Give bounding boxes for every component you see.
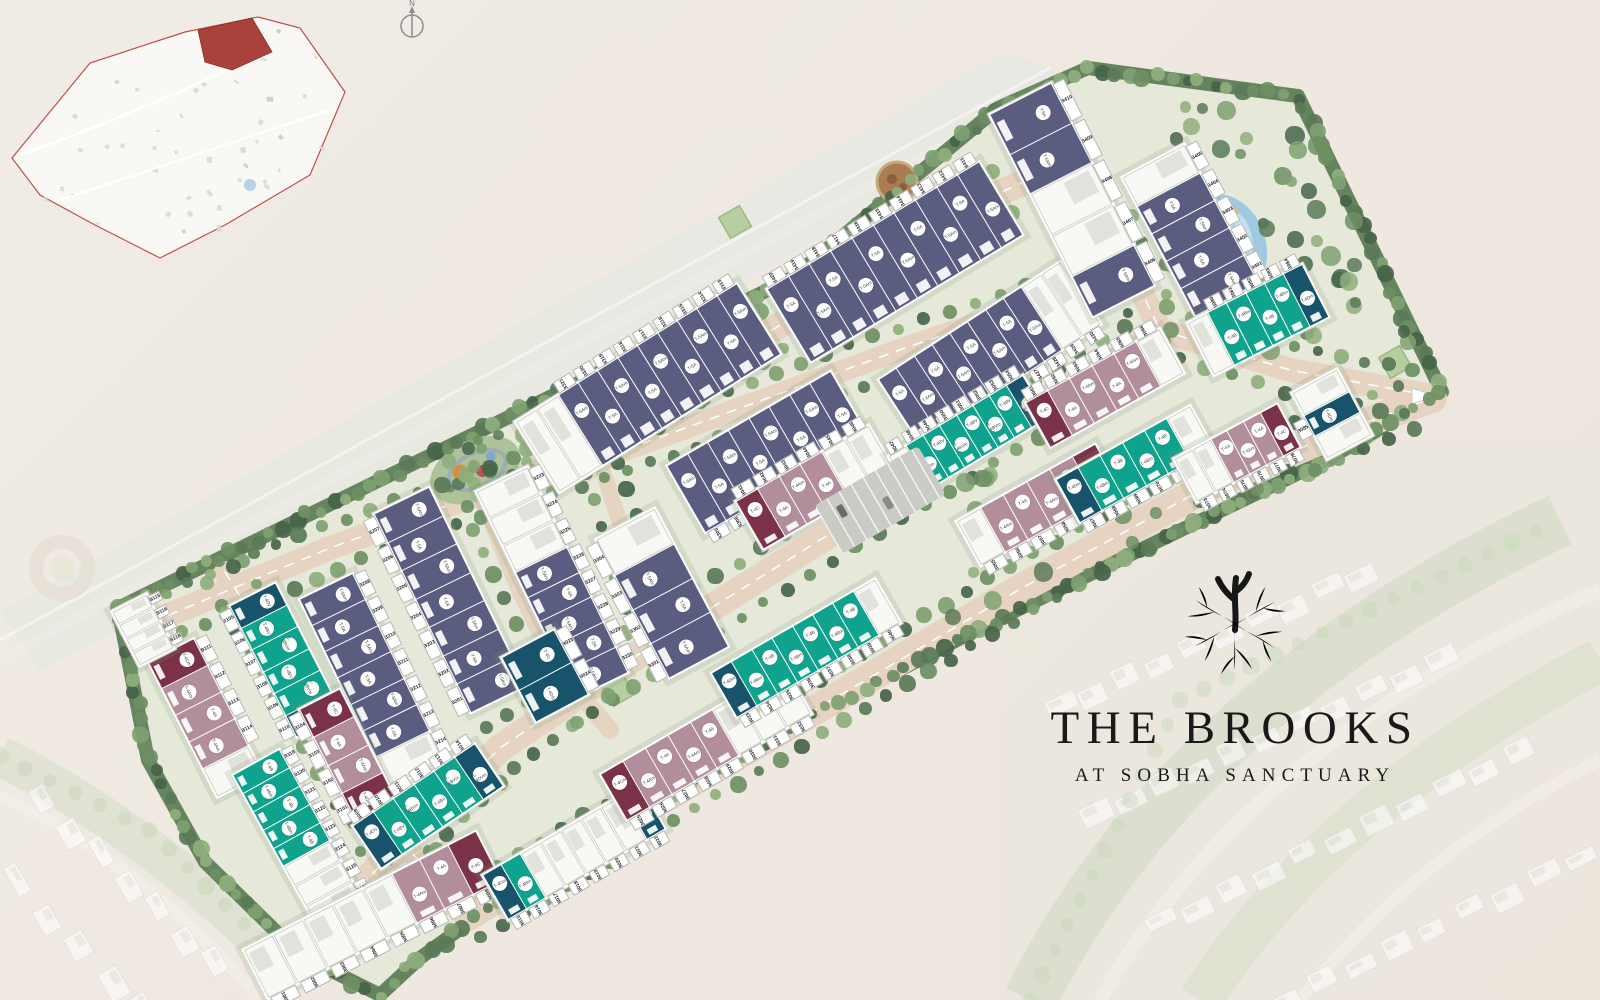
unit-type-badge: T-5A <box>682 356 703 377</box>
tree-icon <box>512 399 528 415</box>
unit-type-badge: T-4B <box>760 647 780 667</box>
unit-type-badge: T-4Bm <box>1234 304 1254 324</box>
tree-icon <box>221 542 235 556</box>
unit-type-badge: T-5Am <box>760 423 780 443</box>
tree-icon <box>588 493 601 506</box>
tree-icon <box>1180 101 1191 112</box>
tree-icon <box>945 609 960 624</box>
tree-icon <box>1301 183 1317 199</box>
tree-icon <box>1185 513 1201 529</box>
unit-type-badge: T-5A <box>464 648 484 668</box>
unit-type-badge: T-4DVm <box>470 764 491 785</box>
plot-number-label: B001 <box>270 984 301 1000</box>
unit-type-badge: T-5Am <box>571 400 592 421</box>
tree-icon <box>340 494 351 505</box>
unit-type-badge: T-5Am <box>801 399 821 419</box>
unit-type-badge: T-5A <box>925 359 946 380</box>
tree-icon <box>1097 842 1113 858</box>
unit-type-badge: T-5A <box>584 632 604 652</box>
unit-type-badge: T-4Bm <box>827 623 847 643</box>
tree-icon <box>794 739 809 754</box>
tree-icon <box>271 539 281 549</box>
tree-icon <box>354 551 368 565</box>
pocket-park <box>719 206 752 239</box>
tree-icon <box>985 626 1000 641</box>
tree-icon <box>509 616 525 632</box>
unit-type-badge: T-4C <box>1272 422 1292 442</box>
unit-type-badge: T-5A <box>823 269 844 290</box>
tree-icon <box>506 451 521 466</box>
unit-type-badge: T-5Am <box>1115 265 1135 285</box>
unit-type-badge: T-5A <box>997 313 1018 334</box>
tree-icon <box>478 547 489 558</box>
tree-icon <box>1382 357 1395 370</box>
unit-type-badge: T-4C <box>1034 400 1054 420</box>
unit-type-badge: T-4Dm <box>490 873 510 893</box>
unit-type-badge: T-4Bm <box>1092 475 1112 495</box>
unit-type-badge: T-4Am <box>1122 351 1142 371</box>
tree-icon <box>126 672 140 686</box>
tree-icon <box>920 663 936 679</box>
unit-type-badge: T-4Am <box>996 516 1016 536</box>
unit-type-badge: T-5A <box>721 331 742 352</box>
unit-type-badge: T-4A <box>1012 492 1032 512</box>
tree-icon <box>570 716 584 730</box>
tree-icon <box>393 469 406 482</box>
tree-icon <box>68 786 82 800</box>
tree-icon <box>186 562 197 573</box>
unit-type-badge: T-4A <box>1062 399 1082 419</box>
unit-type-badge: T-4Cm <box>610 772 630 792</box>
tree-icon <box>1217 101 1236 120</box>
tree-icon <box>845 691 859 705</box>
unit-type-badge: T-4BV <box>257 619 277 639</box>
unit-type-badge: T-4Bm <box>1272 285 1292 305</box>
unit-type-badge: T-4A <box>699 720 719 740</box>
tree-icon <box>859 702 871 714</box>
tree-icon <box>820 701 830 711</box>
tree-icon <box>734 558 746 570</box>
unit-type-badge: T-4A <box>1106 375 1126 395</box>
tree-icon <box>500 708 513 721</box>
tree-icon <box>1286 176 1297 187</box>
tree-icon <box>373 470 390 487</box>
unit-type-badge: T-4Am <box>205 735 225 755</box>
tree-icon <box>1372 403 1388 419</box>
tree-icon <box>781 583 795 597</box>
unit-type-badge: T-5A <box>602 406 623 427</box>
tree-icon <box>1334 349 1348 363</box>
unit-type-badge: T-5A <box>358 670 378 690</box>
unit-type-badge: T-5Am <box>465 613 485 633</box>
unit-type-badge: T-4A <box>328 732 348 752</box>
tree-icon <box>1289 341 1300 352</box>
unit-type-badge: T-5Am <box>856 275 877 296</box>
tree-icon <box>970 298 981 309</box>
car-icon <box>882 496 895 511</box>
unit-type-badge: T-5Am <box>437 556 457 576</box>
key-plan-inset <box>0 0 420 300</box>
tree-icon <box>161 841 177 857</box>
tree-icon <box>199 618 212 631</box>
unit-type-badge: T-4BVm <box>402 794 423 815</box>
tree-icon <box>1086 869 1098 881</box>
tree-icon <box>261 918 272 929</box>
tree-icon <box>181 861 194 874</box>
tree-icon <box>309 572 324 587</box>
tree-icon <box>263 527 274 538</box>
tree-icon <box>897 662 909 674</box>
tree-icon <box>916 607 932 623</box>
tree-icon <box>126 686 139 699</box>
tree-icon <box>485 566 502 583</box>
tree-icon <box>626 679 642 695</box>
unit-type-badge: T-5A <box>1033 102 1053 122</box>
tree-icon <box>1133 70 1150 87</box>
unit-type-badge: T-4A <box>654 746 674 766</box>
unit-type-badge: T-4Dm <box>719 671 739 691</box>
tree-icon <box>1126 536 1139 549</box>
tree-icon <box>219 875 236 892</box>
unit-type-badge: T-5A <box>383 722 403 742</box>
unit-type-badge: T-4B <box>1222 327 1242 347</box>
tree-icon <box>1345 212 1364 231</box>
tree-icon <box>527 747 540 760</box>
unit-type-badge: T-4DV <box>257 591 277 611</box>
tree-icon <box>497 591 511 605</box>
unit-type-badge: T-5Am <box>679 470 699 490</box>
unit-type-badge: T-4Bm <box>746 670 766 690</box>
car-icon <box>836 504 849 519</box>
tree-icon <box>965 640 976 651</box>
tree-icon <box>1235 497 1246 508</box>
unit-type-badge: T-5Am <box>690 326 711 347</box>
tree-icon <box>451 518 463 530</box>
unit-type-badge: T-5Am <box>954 364 975 385</box>
unit-type-badge: T-4BV <box>429 791 450 812</box>
tree-icon <box>893 324 904 335</box>
tree-icon <box>547 734 560 747</box>
tree-icon <box>601 688 617 704</box>
tree-icon <box>316 520 327 531</box>
tree-icon <box>827 556 839 568</box>
project-logo: THE BROOKS AT SOBHA SANCTUARY <box>1020 566 1450 787</box>
unit-type-badge: T-5A <box>781 295 802 316</box>
tree-icon <box>461 500 474 513</box>
unit-type-badge: T-4B <box>1108 452 1128 472</box>
tree-icon <box>746 377 758 389</box>
tree-icon <box>480 721 493 734</box>
tree-icon <box>794 357 809 372</box>
tree-icon <box>596 521 607 532</box>
tree-icon <box>773 752 788 767</box>
unit-type-badge: T-4Am <box>178 682 198 702</box>
tree-icon <box>1111 818 1124 831</box>
unit-type-badge: T-5A <box>1191 250 1211 270</box>
unit-type-badge: T-4BV <box>389 819 410 840</box>
tree-icon <box>1122 792 1138 808</box>
tree-icon <box>972 125 982 135</box>
key-plan-boundary <box>12 17 345 258</box>
unit-type-badge: T-4D <box>537 644 557 664</box>
tree-icon <box>1023 993 1036 1000</box>
tree-icon <box>493 430 503 440</box>
tree-icon <box>151 764 163 776</box>
tree-icon <box>730 776 747 793</box>
tree-icon <box>287 581 303 597</box>
unit-type-badge: T-4Dm <box>1298 289 1318 309</box>
tree-icon <box>407 952 424 969</box>
tree-icon <box>887 670 900 683</box>
unit-type-badge: T-4Am <box>639 770 659 790</box>
unit-type-badge: T-5Am <box>650 350 671 371</box>
unit-type-badge: T-5Am <box>409 500 429 520</box>
tree-icon <box>1321 246 1341 266</box>
branch-tree-icon <box>1175 566 1295 682</box>
tree-icon <box>836 712 852 728</box>
tree-icon <box>482 460 498 476</box>
unit-type-badge: T-5Am <box>358 637 378 657</box>
tree-icon <box>899 675 916 692</box>
unit-type-badge: T-5Am <box>983 199 1004 220</box>
tree-icon <box>1289 141 1307 159</box>
tree-icon <box>201 555 212 566</box>
tree-icon <box>298 505 311 518</box>
tree-icon <box>952 634 963 645</box>
tree-icon <box>468 460 481 473</box>
unit-type-badge: T-5Am <box>898 250 919 271</box>
unit-type-badge: T-4Bm <box>786 647 806 667</box>
tree-icon <box>1116 550 1133 567</box>
tree-icon <box>237 917 251 931</box>
unit-type-badge: T-5A <box>437 592 457 612</box>
unit-type-badge: T-5A <box>709 475 729 495</box>
tree-icon <box>1377 265 1394 282</box>
unit-type-badge: T-4Bm <box>515 874 535 894</box>
unit-type-badge: T-4A <box>203 702 223 722</box>
tree-icon <box>816 726 828 738</box>
tree-icon <box>1141 541 1157 557</box>
unit-type-badge: T-5Am <box>730 301 751 322</box>
unit-type-badge: T-4Bm <box>1136 451 1156 471</box>
tree-icon <box>1284 474 1295 485</box>
tree-icon <box>1340 272 1359 291</box>
tree-icon <box>418 458 429 469</box>
tree-icon <box>177 820 190 833</box>
tree-icon <box>182 577 193 588</box>
unit-type-badge: T-4Am <box>788 475 808 495</box>
tree-icon <box>954 125 969 140</box>
tree-icon <box>93 798 107 812</box>
tree-icon <box>1347 258 1362 273</box>
tree-icon <box>1393 380 1405 392</box>
tree-icon <box>376 992 386 1000</box>
unit-type-badge: T-4C <box>745 499 765 519</box>
unit-type-badge: T-5A <box>559 582 579 602</box>
unit-type-badge: T-5Am <box>384 689 404 709</box>
tree-icon <box>316 507 327 518</box>
tree-icon <box>1350 297 1361 308</box>
site-plan-canvas: T-5AB420T-5AmB419T-5AB418T-5AmB417T-5AB4… <box>0 0 1600 1000</box>
unit-type-badge: T-4A <box>816 474 836 494</box>
unit-type-badge: T-5A <box>642 381 663 402</box>
tree-icon <box>860 683 874 697</box>
unit-type-badge: T-4A <box>773 499 793 519</box>
unit-type-badge: T-5A <box>961 336 982 357</box>
tree-icon <box>956 473 975 492</box>
tree-icon <box>880 689 893 702</box>
unit-type-badge: T-4B <box>1260 308 1280 328</box>
tree-icon <box>943 485 956 498</box>
unit-type-badge: T-4B <box>800 624 820 644</box>
tree-icon <box>218 898 232 912</box>
tree-icon <box>667 814 680 827</box>
unit-type-badge: T-4C <box>324 699 344 719</box>
tree-icon <box>507 761 521 775</box>
tree-icon <box>1251 375 1265 389</box>
tree-icon <box>142 822 157 837</box>
unit-type-badge: T-5Am <box>676 637 696 657</box>
tree-icon <box>1073 893 1087 907</box>
tree-icon <box>399 962 409 972</box>
tree-icon <box>1235 149 1246 160</box>
unit-type-badge: T-5Am <box>333 584 353 604</box>
tree-icon <box>165 579 175 589</box>
tree-icon <box>1247 85 1259 97</box>
unit-type-badge: T-5A <box>950 193 971 214</box>
unit-type-badge: T-4Am <box>1078 376 1098 396</box>
unit-type-badge: T-4BVm <box>302 678 322 698</box>
unit-type-badge: T-5A <box>1162 195 1182 215</box>
tree-icon <box>450 436 463 449</box>
unit-type-badge: T-5Am <box>989 341 1010 362</box>
unit-type-badge: T-5Am <box>918 387 939 408</box>
tree-icon <box>1151 67 1165 81</box>
tree-icon <box>442 454 456 468</box>
unit-type-badge: T-4Dm <box>1319 405 1339 425</box>
unit-type-badge: T-4B <box>840 600 860 620</box>
unit-type-badge: T-4B <box>1152 428 1172 448</box>
tree-icon <box>1010 443 1023 456</box>
unit-type-badge: T-4BVm <box>279 634 299 654</box>
tree-icon <box>1183 118 1200 135</box>
tree-icon <box>200 855 212 867</box>
tree-icon <box>1240 132 1253 145</box>
unit-type-badge: T-5Am <box>640 568 660 588</box>
tree-icon <box>917 312 930 325</box>
unit-type-badge: T-5A <box>332 617 352 637</box>
tree-icon <box>1068 70 1081 83</box>
unit-type-badge: T-5Am <box>719 446 739 466</box>
unit-type-badge: T-5Am <box>1025 317 1046 338</box>
compass-north-label: N <box>409 0 415 8</box>
tree-icon <box>1259 220 1275 236</box>
unit-type-badge: T-4Am <box>684 744 704 764</box>
project-title: THE BROOKS <box>1020 701 1450 755</box>
unit-type-badge: T-4BVm <box>442 767 463 788</box>
tree-icon <box>1405 363 1420 378</box>
tree-icon <box>645 456 656 467</box>
tree-icon <box>193 840 210 857</box>
unit-type-badge: T-4Dm <box>1064 476 1084 496</box>
tree-icon <box>984 591 1002 609</box>
tree-icon <box>236 542 248 554</box>
tree-icon <box>248 548 259 559</box>
unit-type-badge: T-4A <box>431 857 451 877</box>
tree-icon <box>1034 966 1052 984</box>
unit-type-badge: T-4DV <box>361 822 382 843</box>
unit-type-badge: T-5A <box>409 535 429 555</box>
tree-icon <box>170 809 180 819</box>
tree-icon <box>943 305 957 319</box>
unit-type-badge: T-4Am <box>1042 491 1062 511</box>
unit-type-badge: T-5Am <box>940 224 961 245</box>
tree-icon <box>135 712 148 725</box>
tree-icon <box>865 328 880 343</box>
tree-icon <box>1061 918 1074 931</box>
tree-icon <box>944 654 958 668</box>
unit-type-badge: T-5A <box>908 218 929 239</box>
unit-type-badge: T-5A <box>673 595 693 615</box>
unit-type-badge: T-4Cm <box>176 649 196 669</box>
unit-type-badge: T-5Am <box>611 375 632 396</box>
unit-type-badge: T-5Am <box>1037 150 1057 170</box>
tree-icon <box>1407 421 1422 436</box>
tree-icon <box>118 811 132 825</box>
tree-icon <box>434 477 450 493</box>
tree-icon <box>913 164 925 176</box>
tree-icon <box>399 455 415 471</box>
tree-icon <box>737 613 747 623</box>
tree-icon <box>462 442 475 455</box>
compass-north-icon: N <box>392 0 432 44</box>
unit-type-badge: T-5A <box>865 244 886 265</box>
tree-icon <box>483 903 493 913</box>
unit-type-badge: T-5A <box>889 383 910 404</box>
unit-type-badge: T-4Dm <box>540 684 560 704</box>
tree-icon <box>1530 525 1543 538</box>
tree-icon <box>1080 60 1094 74</box>
unit-type-badge: T-4Am <box>353 755 373 775</box>
tree-icon <box>831 695 846 710</box>
tree-icon <box>974 470 991 487</box>
tree-icon <box>905 174 916 185</box>
tree-icon <box>290 527 307 544</box>
unit-type-badge: T-4BV <box>279 662 299 682</box>
tree-icon <box>1398 325 1410 337</box>
tree-icon <box>343 976 361 994</box>
tree-icon <box>707 568 723 584</box>
tree-icon <box>1166 529 1177 540</box>
tree-icon <box>17 761 33 777</box>
tree-icon <box>134 696 147 709</box>
tree-icon <box>226 559 241 574</box>
project-subtitle: AT SOBHA SANCTUARY <box>1020 765 1450 787</box>
tree-icon <box>1391 296 1405 310</box>
tree-icon <box>1364 232 1376 244</box>
tree-icon <box>1399 408 1411 420</box>
tree-icon <box>1308 136 1326 154</box>
tree-icon <box>1295 102 1307 114</box>
unit-type-badge: T-4Am <box>410 884 430 904</box>
unit-type-badge: T-5Am <box>534 564 554 584</box>
unit-type-badge: T-5Am <box>1193 214 1213 234</box>
unit-type-badge: T-5Am <box>813 301 834 322</box>
